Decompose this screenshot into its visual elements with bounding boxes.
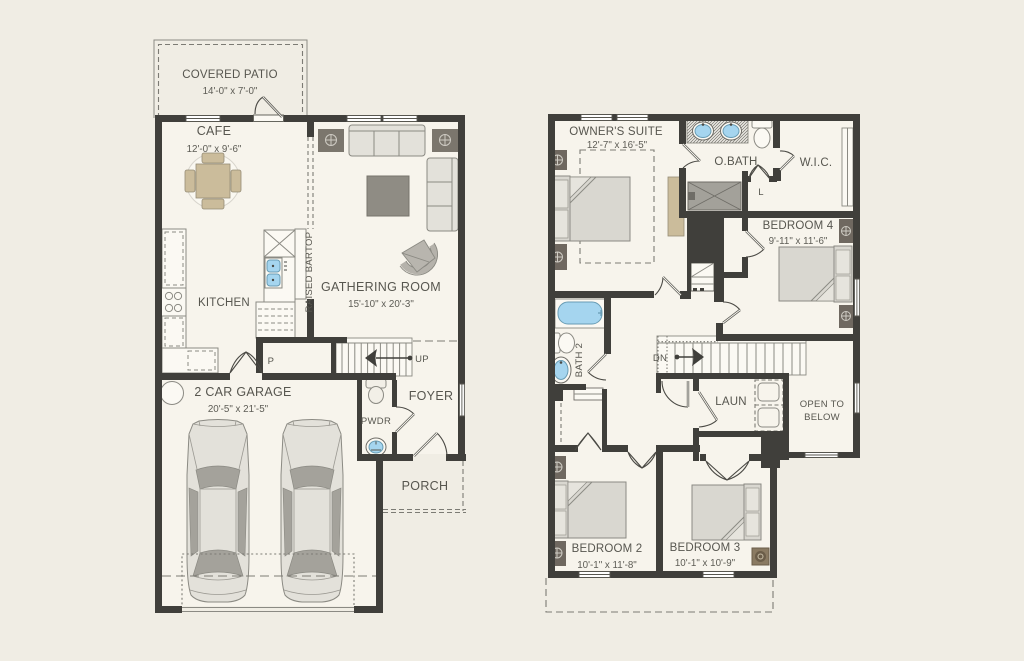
svg-text:DN: DN	[653, 353, 667, 364]
svg-text:PORCH: PORCH	[402, 479, 449, 493]
svg-text:BATH 2: BATH 2	[574, 343, 585, 377]
svg-text:LAUN: LAUN	[715, 396, 746, 408]
svg-text:14'-0" x 7'-0": 14'-0" x 7'-0"	[203, 86, 258, 97]
svg-text:COVERED PATIO: COVERED PATIO	[182, 69, 277, 81]
svg-text:2 CAR GARAGE: 2 CAR GARAGE	[194, 385, 291, 399]
svg-text:BEDROOM 3: BEDROOM 3	[670, 542, 741, 554]
svg-text:BEDROOM 2: BEDROOM 2	[572, 543, 643, 555]
svg-text:W.I.C.: W.I.C.	[800, 157, 833, 169]
svg-text:KITCHEN: KITCHEN	[198, 297, 250, 309]
svg-text:CAFE: CAFE	[197, 124, 232, 138]
svg-text:OWNER'S SUITE: OWNER'S SUITE	[569, 126, 663, 138]
svg-text:FOYER: FOYER	[409, 389, 454, 403]
svg-text:O.BATH: O.BATH	[714, 156, 757, 168]
svg-text:P: P	[268, 356, 275, 367]
svg-text:10'-1" x 10'-9": 10'-1" x 10'-9"	[675, 558, 736, 569]
svg-text:12'-0" x 9'-6": 12'-0" x 9'-6"	[187, 144, 242, 155]
svg-text:12'-7" x 16'-5": 12'-7" x 16'-5"	[587, 140, 648, 151]
svg-text:20'-5" x 21'-5": 20'-5" x 21'-5"	[208, 404, 269, 415]
svg-text:GATHERING ROOM: GATHERING ROOM	[321, 280, 441, 294]
svg-text:PWDR: PWDR	[361, 416, 391, 427]
svg-text:UP: UP	[415, 354, 429, 365]
svg-text:10'-1" x 11'-8": 10'-1" x 11'-8"	[577, 560, 637, 571]
svg-text:BELOW: BELOW	[804, 412, 840, 423]
svg-text:9'-11" x 11'-6": 9'-11" x 11'-6"	[769, 236, 828, 247]
svg-text:OPEN TO: OPEN TO	[800, 399, 845, 410]
svg-text:15'-10" x 20'-3": 15'-10" x 20'-3"	[348, 299, 414, 310]
svg-text:BEDROOM 4: BEDROOM 4	[763, 220, 834, 232]
svg-text:L: L	[758, 187, 764, 198]
svg-text:RAISED BARTOP: RAISED BARTOP	[304, 232, 315, 313]
